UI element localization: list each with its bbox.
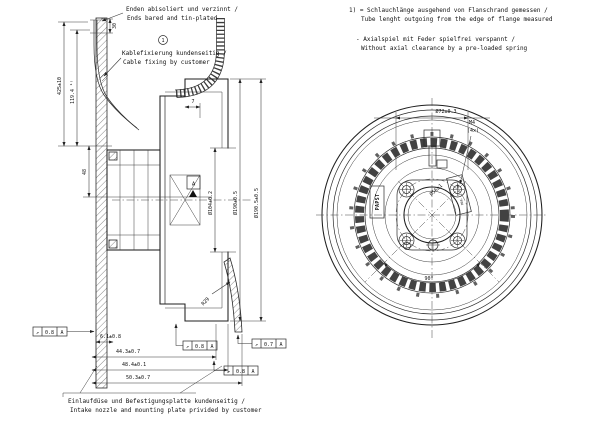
dim-7: 7: [185, 99, 200, 118]
note-tube-en: Tube lenght outgoing from the edge of fl…: [361, 16, 553, 23]
note-tube-de: 1) = Schlauchlänge ausgehend von Flansch…: [349, 7, 548, 14]
tolerance-frame-4: ↗ 0.7 A: [238, 335, 286, 348]
dim-190-label: Ø190±0.5: [232, 191, 239, 215]
m4-count-label: (4x): [467, 128, 479, 134]
angle-90-label: 90°: [424, 276, 433, 282]
corrugated-tube: [175, 18, 225, 98]
dim-7-label: 7: [191, 99, 194, 105]
tolerance-frame-1: ↗ 0.8 A: [33, 327, 94, 336]
papst-logo-text: PAPST: [375, 194, 381, 211]
dim-425-label: 425±10: [57, 77, 63, 95]
note-ref-number: 1: [161, 38, 164, 44]
tolerance-value: 0.8: [45, 330, 54, 336]
dim-bottom-stack: 6.1±0.8 44.3±0.7 48.4±0.1 50.3±0.7: [92, 324, 242, 386]
dim-50-3-label: 50.3±0.7: [126, 375, 150, 381]
dim-r29: R29: [200, 282, 230, 307]
drawing-canvas: 30: [0, 0, 600, 429]
note-axial-en: Without axial clearance by a pre-loaded …: [361, 45, 528, 52]
tolerance-datum: A: [279, 342, 282, 348]
dim-56-label: Ø56±1: [428, 182, 444, 197]
dim-72-label: Ø72±0.3: [435, 108, 456, 115]
dim-48: 48: [82, 146, 89, 197]
mounting-plate: [96, 18, 107, 388]
dim-190-5-label: Ø190.5±0.5: [253, 188, 260, 218]
note-ends-en: Ends bared and tin-plated: [127, 15, 218, 22]
dim-48-4-label: 48.4±0.1: [122, 362, 146, 368]
r29-label: R29: [200, 296, 211, 307]
note-ends-de: Enden abisoliert und verzinnt /: [126, 6, 238, 13]
front-view: PAPST MAX. 7.5 Nm Ø72±0.3 M4 (4x) Ø56±1: [316, 98, 548, 338]
tolerance-value: 0.7: [264, 342, 273, 348]
note-bottom-bracket: [63, 366, 222, 397]
tolerance-frame-3: ↗ 0.8 A: [214, 361, 258, 375]
note-nozzle-en: Intake nozzle and mounting plate privide…: [70, 407, 262, 414]
note-ref-circle: 1: [159, 36, 168, 45]
note-cablefix-en: Cable fixing by customer: [123, 59, 210, 66]
technical-drawing-sheet: 30: [0, 0, 600, 429]
tolerance-frame-2: ↗ 0.8 A: [176, 324, 217, 350]
m4-label: M4: [469, 120, 475, 126]
tolerance-value: 0.8: [236, 369, 245, 375]
dim-44-3-label: 44.3±0.7: [116, 349, 140, 355]
drain-hole: [404, 243, 411, 250]
tolerance-datum: A: [60, 330, 63, 336]
note-nozzle-de: Einlaufdüse und Befestigungsplatte kunde…: [68, 398, 245, 405]
dim-30-label: 30: [112, 23, 118, 29]
dim-119: 119.4 ¹⁾: [70, 30, 90, 146]
runout-symbol: ↗: [36, 330, 39, 336]
runout-symbol: ↗: [186, 344, 189, 350]
tolerance-datum: A: [210, 344, 213, 350]
runout-symbol: ↗: [227, 369, 230, 375]
screw-hole: [399, 182, 414, 197]
tolerance-datum: A: [251, 369, 254, 375]
runout-symbol: ↗: [255, 342, 258, 348]
note-cablefix-de: Kablefixierung kundenseitig /: [122, 50, 227, 57]
tolerance-value: 0.8: [195, 344, 204, 350]
side-view: 30: [33, 18, 286, 388]
note-axial-de: - Axialspiel mit Feder spielfrei verspan…: [356, 36, 515, 43]
dim-6-1-label: 6.1±0.8: [100, 334, 121, 340]
dim-104-label: Ø104±0.2: [207, 191, 214, 215]
datum-a-label: A: [192, 182, 196, 188]
dim-48-label: 48: [82, 169, 88, 175]
dim-119-label: 119.4 ¹⁾: [70, 80, 76, 104]
dim-cable-end-30: 30: [110, 19, 118, 33]
